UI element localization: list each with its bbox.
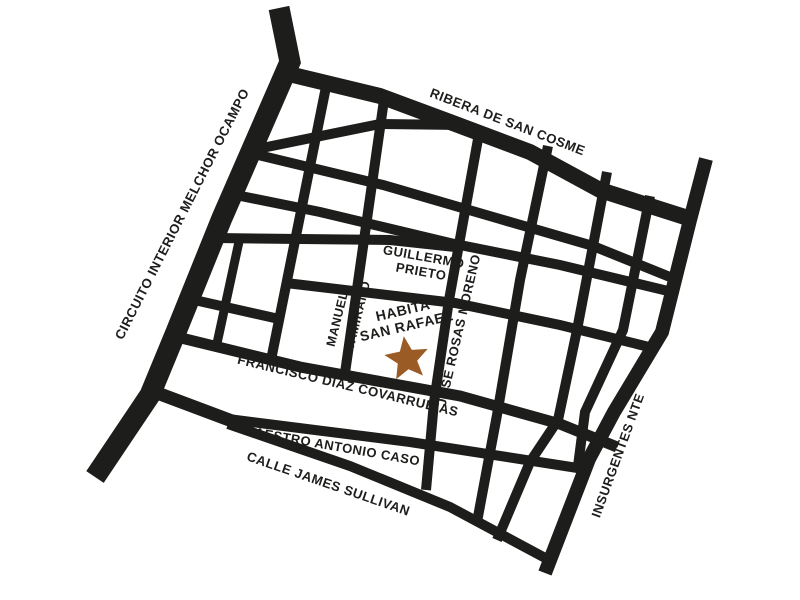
- street-ns-2: [271, 82, 327, 360]
- star-icon: [382, 333, 431, 380]
- street-ribera-de-san-cosme: [293, 75, 688, 218]
- street-ribera-wedge: [257, 124, 462, 149]
- streets-layer: [95, 8, 706, 573]
- location-map: CIRCUITO INTERIOR MELCHOR OCAMPO RIBERA …: [0, 0, 800, 600]
- street-ns-1: [216, 237, 240, 348]
- street-ew-stub: [190, 299, 279, 319]
- map-canvas: CIRCUITO INTERIOR MELCHOR OCAMPO RIBERA …: [0, 0, 800, 600]
- street-fork-approach: [152, 391, 232, 421]
- street-ew-3: [215, 238, 455, 247]
